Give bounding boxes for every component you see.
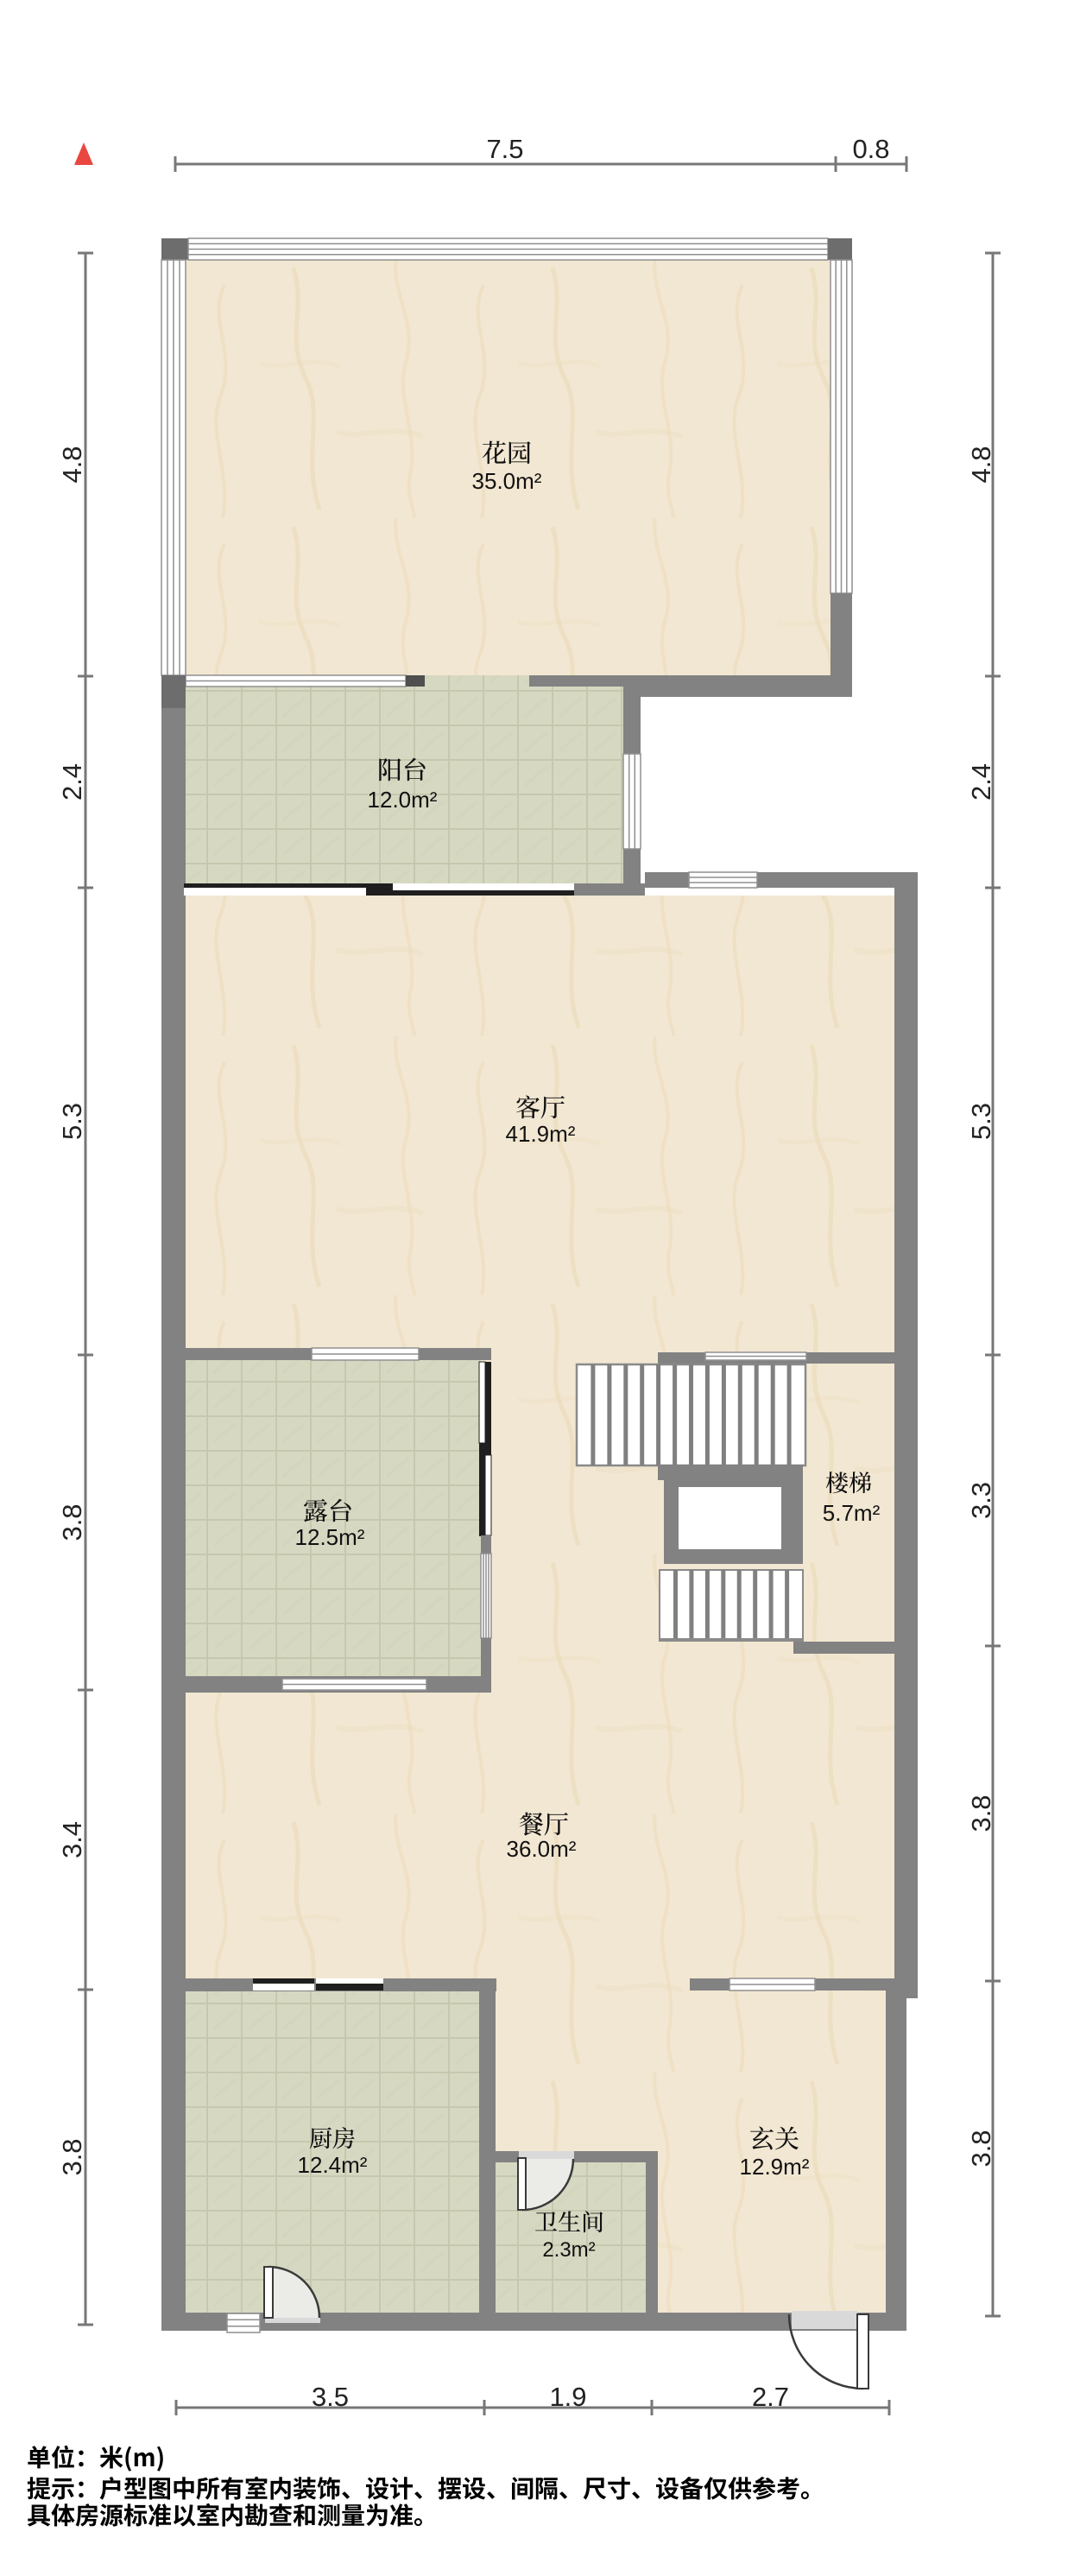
- svg-text:5.3: 5.3: [57, 1103, 87, 1140]
- svg-text:5.7m²: 5.7m²: [823, 1500, 881, 1526]
- svg-text:2.4: 2.4: [966, 763, 996, 801]
- svg-text:12.5m²: 12.5m²: [295, 1524, 365, 1550]
- svg-text:36.0m²: 36.0m²: [507, 1836, 577, 1862]
- svg-text:12.9m²: 12.9m²: [740, 2154, 810, 2180]
- svg-text:0.8: 0.8: [852, 134, 889, 164]
- svg-text:3.8: 3.8: [966, 2130, 996, 2167]
- svg-text:4.8: 4.8: [57, 446, 87, 483]
- svg-text:3.3: 3.3: [966, 1482, 996, 1519]
- svg-text:2.3m²: 2.3m²: [542, 2238, 595, 2262]
- svg-text:4.8: 4.8: [966, 446, 996, 483]
- svg-text:3.4: 3.4: [57, 1821, 87, 1858]
- svg-text:3.8: 3.8: [57, 1503, 87, 1541]
- svg-text:7.5: 7.5: [486, 134, 523, 164]
- svg-text:12.4m²: 12.4m²: [298, 2152, 368, 2178]
- svg-text:3.5: 3.5: [312, 2382, 349, 2412]
- svg-text:41.9m²: 41.9m²: [506, 1121, 576, 1147]
- svg-text:3.8: 3.8: [57, 2138, 87, 2175]
- svg-text:12.0m²: 12.0m²: [368, 787, 438, 813]
- svg-text:5.3: 5.3: [966, 1103, 996, 1140]
- svg-text:35.0m²: 35.0m²: [472, 468, 542, 494]
- svg-text:2.4: 2.4: [57, 763, 87, 801]
- svg-text:3.8: 3.8: [966, 1794, 996, 1832]
- svg-text:1.9: 1.9: [549, 2382, 586, 2412]
- svg-text:2.7: 2.7: [752, 2382, 789, 2412]
